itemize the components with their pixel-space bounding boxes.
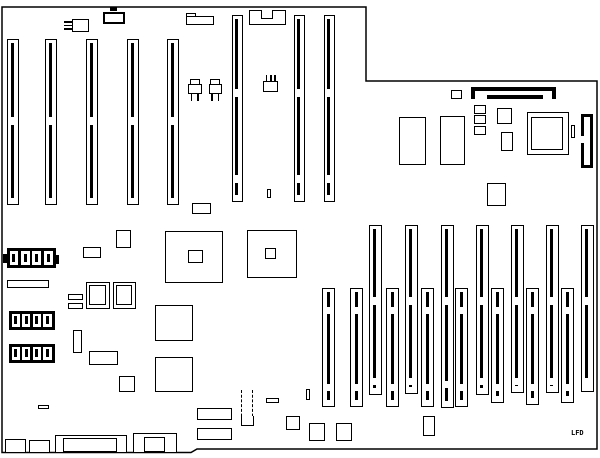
edge-connector (5, 439, 26, 453)
slot-key-gap (515, 378, 519, 385)
transistor-leg (191, 94, 193, 101)
slot-contact-line (373, 229, 376, 388)
memory-slot-tall (369, 225, 382, 395)
battery-cell-mark (35, 254, 38, 262)
large-chip (165, 231, 223, 283)
component-3pin-top (263, 75, 278, 92)
pin (64, 21, 72, 23)
transistor-body (188, 84, 202, 94)
transistor-body (209, 84, 223, 94)
large-chip-inner (265, 248, 276, 260)
battery-terminal (56, 255, 60, 264)
keyboard-connector-inner (63, 438, 117, 452)
expansion-slot (7, 39, 19, 205)
dip-switch-cells (12, 347, 52, 360)
slot-key-gap (48, 117, 52, 125)
slot-key-gap (565, 307, 569, 314)
pin (64, 25, 72, 27)
dip-switch-cell (43, 314, 51, 327)
expansion-slot-long (324, 15, 335, 202)
ram-chip (399, 117, 426, 165)
jumper-solid-end (241, 416, 254, 426)
memory-slot-short (350, 288, 363, 407)
battery-cell-mark (12, 254, 15, 262)
dip-switch (9, 344, 55, 363)
memory-slot-short (526, 288, 539, 405)
memory-slot-tall (511, 225, 524, 393)
small-ic (119, 376, 135, 392)
memory-slot-tall (581, 225, 594, 392)
slot-contact-line (235, 19, 238, 195)
jumper-block-dashed (241, 390, 253, 426)
pin-mark (571, 125, 576, 138)
slot-key-gap (445, 297, 449, 305)
battery-cell-mark (47, 254, 50, 262)
dip-switch-cell-mark (46, 349, 49, 357)
small-ic (83, 247, 101, 258)
small-ic (487, 183, 507, 207)
memory-slot-short (386, 288, 399, 407)
slot-key-gap (235, 89, 239, 97)
memory-slot-short (561, 288, 574, 403)
slot-key-gap (495, 384, 499, 391)
transistor-leg (211, 94, 213, 101)
dip-switch-cell (33, 347, 41, 360)
header-connector-bar (471, 87, 557, 91)
battery-cell (21, 251, 30, 265)
dip-switch-cells (12, 314, 52, 327)
stepped-connector (186, 16, 214, 25)
pin (64, 28, 72, 30)
small-ic (474, 115, 486, 124)
slot-key-gap (354, 307, 358, 314)
battery-cell (10, 251, 19, 265)
slot-key-gap (327, 175, 331, 183)
connector-bar (7, 280, 49, 288)
slot-contact-line (480, 229, 483, 388)
jumper-bar (68, 294, 84, 300)
small-ic (197, 428, 232, 440)
socketed-chip (113, 282, 137, 309)
small-ic (73, 330, 82, 353)
dip-switch-cell (43, 347, 51, 360)
rom-chip (155, 305, 193, 341)
motherboard-diagram: LFD (0, 0, 600, 458)
slot-key-gap (480, 378, 484, 385)
keyed-connector (249, 10, 286, 25)
dip-switch-cell (12, 347, 20, 360)
small-ic (474, 105, 486, 114)
dip-switch-cell-mark (25, 349, 28, 357)
slot-key-gap (235, 175, 239, 183)
dip-switch (9, 311, 55, 330)
header-connector-leg (552, 91, 556, 99)
small-ic (192, 203, 211, 214)
memory-slot-tall (405, 225, 418, 394)
header-connector-leg (471, 91, 475, 99)
slot-key-gap (480, 297, 484, 305)
slot-key-gap (297, 89, 301, 97)
slot-key-gap (530, 384, 534, 391)
slot-key-gap (550, 297, 554, 305)
slot-contact-line (327, 19, 330, 195)
power-connector (133, 433, 177, 453)
slot-key-gap (515, 297, 519, 305)
slot-contact-line (409, 229, 412, 387)
connector-tab (110, 7, 117, 11)
expansion-slot (127, 39, 139, 205)
slot-key-gap (445, 381, 449, 388)
expansion-slot (167, 39, 179, 205)
small-ic (423, 416, 436, 436)
slot-key-gap (459, 307, 463, 314)
pin-mark (267, 189, 271, 198)
slot-key-gap (327, 89, 331, 97)
memory-slot-tall (546, 225, 559, 393)
small-ic (116, 230, 131, 248)
slot-key-gap (89, 117, 93, 125)
rom-chip (155, 357, 193, 393)
socketed-chip-inner (116, 285, 133, 305)
cpu-socket-inner (531, 117, 563, 150)
slot-key-gap (390, 307, 394, 314)
slot-key-gap (425, 307, 429, 314)
dip-switch-cell (33, 314, 41, 327)
slot-key-gap (565, 384, 569, 391)
power-connector-inner (144, 437, 166, 452)
small-ic (336, 423, 352, 442)
dip-switch-cell-mark (14, 316, 17, 324)
transistor (188, 79, 202, 101)
expansion-slot-long (294, 15, 305, 202)
small-ic (197, 408, 232, 421)
ram-chip (440, 116, 465, 166)
dip-switch-cell-mark (35, 349, 38, 357)
connector-3pin-left-body (72, 19, 90, 32)
expansion-slot (86, 39, 98, 205)
transistor-leg (218, 94, 220, 101)
cpu-socket (527, 112, 569, 155)
connector-border-gap (580, 136, 584, 143)
small-ic (474, 126, 486, 135)
transistor-leg (197, 94, 199, 101)
header-connector-bar (487, 95, 543, 99)
component-3pin-top-body (263, 81, 278, 92)
dip-switch-cell-mark (35, 316, 38, 324)
slot-contact-line (585, 229, 588, 385)
din-connector (581, 114, 594, 168)
jumper-bar (68, 303, 84, 309)
jumper-bar (266, 398, 279, 403)
keyboard-connector (55, 435, 127, 453)
socketed-chip (86, 282, 110, 309)
battery-terminal (3, 254, 7, 263)
small-ic (286, 416, 300, 430)
edge-connector (29, 440, 50, 453)
dip-switch-cell-mark (14, 349, 17, 357)
jumper-bar (38, 405, 49, 409)
socketed-chip-inner (89, 285, 106, 305)
pin-mark (306, 389, 310, 401)
battery-cell (32, 251, 41, 265)
label-lfd: LFD (571, 429, 589, 438)
slot-key-gap (495, 307, 499, 314)
slot-key-gap (354, 384, 358, 391)
slot-key-gap (373, 297, 377, 305)
slot-key-gap (425, 384, 429, 391)
dip-switch-cell (12, 314, 20, 327)
small-ic (89, 351, 118, 365)
power-tab-connector (103, 12, 125, 24)
memory-slot-short (421, 288, 434, 407)
memory-slot-tall (476, 225, 489, 395)
slot-key-gap (373, 378, 377, 385)
dip-switch-cell-mark (25, 316, 28, 324)
large-chip (247, 230, 297, 278)
dip-switch-cell (22, 347, 30, 360)
small-ic (309, 423, 325, 442)
battery-cell-mark (24, 254, 27, 262)
connector-3pin-left (64, 19, 90, 32)
connector-step (186, 13, 196, 18)
memory-slot-tall (441, 225, 454, 408)
connector-key-notch (261, 10, 273, 19)
expansion-slot-long (232, 15, 243, 202)
large-chip-inner (188, 250, 203, 263)
dip-switch-cell (22, 314, 30, 327)
dip-switch-cell-mark (46, 316, 49, 324)
small-ic (497, 108, 512, 124)
slot-key-gap (130, 117, 134, 125)
slot-contact-line (515, 229, 518, 386)
battery (7, 248, 56, 268)
transistor (209, 79, 223, 101)
slot-key-gap (550, 378, 554, 385)
slot-key-gap (326, 307, 330, 314)
slot-key-gap (326, 384, 330, 391)
slot-contact-line (297, 19, 300, 195)
slot-key-gap (390, 384, 394, 391)
slot-key-gap (170, 117, 174, 125)
memory-slot-short (455, 288, 468, 407)
slot-key-gap (459, 384, 463, 391)
slot-key-gap (409, 378, 413, 385)
small-ic (451, 90, 462, 99)
memory-slot-short (491, 288, 504, 403)
slot-key-gap (530, 307, 534, 314)
battery-cells (10, 251, 53, 265)
slot-key-gap (10, 117, 14, 125)
memory-slot-short (322, 288, 335, 407)
slot-key-gap (297, 175, 301, 183)
small-ic (501, 132, 513, 151)
slot-contact-line (445, 229, 448, 401)
battery-cell (44, 251, 53, 265)
expansion-slot (45, 39, 57, 205)
slot-key-gap (585, 297, 589, 305)
slot-key-gap (585, 378, 589, 385)
slot-contact-line (550, 229, 553, 386)
slot-key-gap (409, 297, 413, 305)
